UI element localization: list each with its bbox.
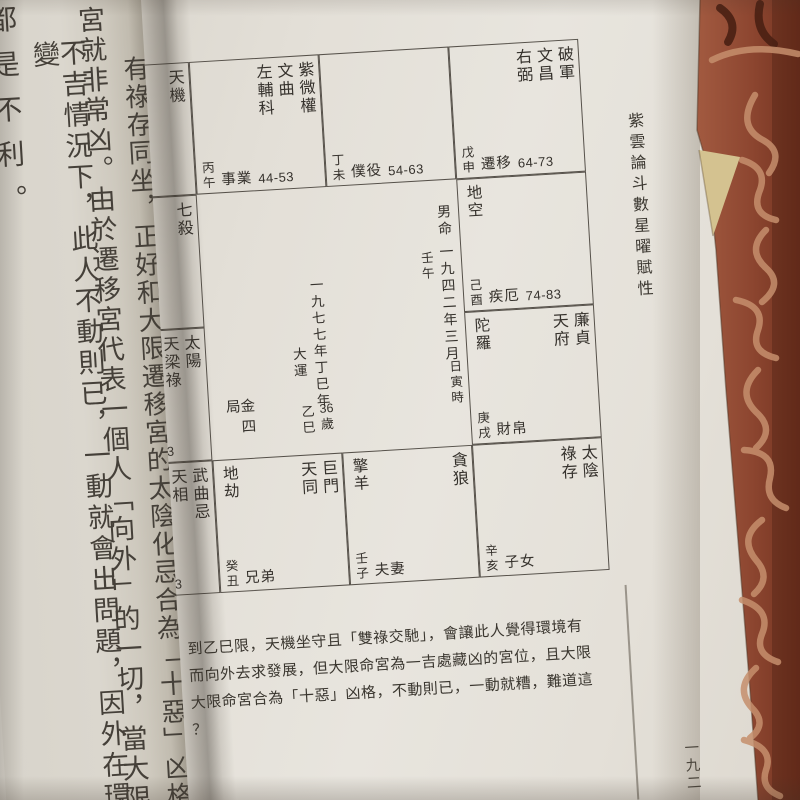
dayun-pillar: 乙巳 [300, 404, 315, 437]
palace-footer: 癸 丑 兄弟 [225, 557, 276, 589]
palace-branch: 未 [332, 168, 345, 183]
palace-stem: 丙 [202, 161, 215, 176]
star-name: 文曲 [274, 62, 293, 117]
stem-branch: 壬 子 [355, 551, 369, 580]
aux-star-name: 地空 [465, 184, 483, 220]
year-pillar: 壬午 [419, 251, 433, 283]
palace-branch: 丑 [226, 574, 239, 589]
palace-stars: 太陽 天梁祿 [160, 334, 200, 390]
palace-range: 74-83 [525, 286, 562, 304]
five-element-bureau: 金四局 [224, 398, 257, 460]
aux-star-name: 地劫 [221, 465, 239, 501]
stem-branch: 戊 申 [461, 145, 475, 174]
palace-stars: 紫微權 文曲 左輔科 [253, 61, 314, 118]
palace-stem: 丁 [331, 153, 344, 168]
stem-branch: 庚 戌 [477, 411, 491, 440]
palace-cell-you: 地空 己 酉 疾厄 74-83 [456, 172, 594, 312]
palace-branch: 午 [203, 175, 216, 190]
star-name: 廉貞 [570, 311, 588, 348]
stem-branch: 丙 午 [202, 161, 216, 190]
stem-branch: 癸 丑 [225, 559, 239, 588]
age-unit: 歲 [320, 416, 334, 432]
star-name: 左輔科 [253, 63, 272, 118]
star-name: 右弼 [513, 48, 531, 85]
palace-branch: 子 [356, 566, 369, 581]
star-name: 武曲忌 [189, 467, 208, 522]
star-name: 天府 [549, 312, 567, 349]
dayun-year: 一九七七年丁巳年 [308, 277, 329, 410]
palace-cell-shen: 破軍 文昌 右弼 戊 申 遷移 64-73 [448, 39, 586, 179]
palace-stars: 貪狼 [448, 451, 466, 488]
palace-range: 54-63 [388, 161, 425, 179]
palace-stars: 廉貞 天府 [549, 311, 588, 349]
page-edge-line [625, 585, 639, 800]
stem-branch: 辛 亥 [485, 544, 499, 573]
palace-stars: 七殺 [173, 201, 191, 238]
star-name: 貪狼 [448, 451, 466, 488]
aux-star-name: 陀羅 [472, 317, 490, 353]
palace-label: 夫妻 [374, 557, 406, 580]
aux-star-name: 擎羊 [351, 457, 369, 493]
star-name: 破軍 [554, 45, 572, 82]
star-name: 天機 [165, 68, 183, 105]
palace-stars: 太陰 祿存 [557, 444, 596, 482]
palace-cell-xu: 陀羅 廉貞 天府 庚 戌 財帛 [464, 304, 602, 444]
palace-label: 子女 [504, 549, 536, 572]
palace-stem: 辛 [485, 544, 498, 559]
dayun-age: 36 歲 [319, 401, 335, 432]
dayun-label: 大運 [291, 347, 306, 381]
palace-cell-wei: 丁 未 僕役 54-63 [319, 47, 457, 187]
star-name: 巨門 [319, 459, 337, 496]
palace-branch: 亥 [486, 558, 499, 573]
palace-label: 遷移 [480, 151, 512, 174]
star-name: 文昌 [534, 47, 552, 84]
palace-range: 64-73 [517, 154, 554, 172]
gender-label: 男命 [435, 204, 451, 239]
palace-footer: 戊 申 遷移 64-73 [461, 141, 554, 175]
palace-cell-wu: 紫微權 文曲 左輔科 丙 午 事業 44-53 [189, 54, 327, 194]
palace-branch: 戌 [478, 425, 491, 440]
birth-time: 日寅時 [447, 359, 462, 406]
star-name: 七殺 [173, 201, 191, 238]
birth-date: 一九四二年三月 [437, 244, 458, 364]
palace-stars: 破軍 文昌 右弼 [513, 45, 573, 84]
palace-cell-zi: 擎羊 貪狼 壬 子 夫妻 [342, 445, 480, 585]
left-page-column: 都是不利。 [0, 4, 26, 230]
palace-stem: 癸 [225, 559, 238, 574]
palace-label: 事業 [221, 166, 253, 189]
palace-cell-chou: 地劫 巨門 天同 癸 丑 兄弟 [212, 453, 350, 593]
palace-stem: 壬 [355, 551, 368, 566]
palace-cell-hai: 太陰 祿存 辛 亥 子女 [472, 437, 610, 577]
palace-label: 兄弟 [244, 565, 276, 588]
palace-stem: 庚 [477, 411, 490, 426]
palace-range: 44-53 [258, 169, 295, 187]
star-name: 太陽 [181, 334, 200, 389]
stem-branch: 己 酉 [469, 278, 483, 307]
palace-stars: 武曲忌 天相 [168, 467, 208, 523]
star-name: 天同 [298, 460, 316, 497]
commentary-paragraph: 到乙巳限，天機坐守且「雙祿交馳」，會讓此人覺得環境有 而向外去求發展，但大限命宮… [187, 613, 596, 745]
palace-footer: 辛 亥 子女 [485, 542, 536, 574]
palace-stem: 己 [469, 278, 482, 293]
palace-label: 僕役 [350, 159, 382, 182]
palace-footer: 丙 午 事業 44-53 [202, 156, 295, 190]
palace-branch: 酉 [470, 293, 483, 308]
age-number: 36 [319, 401, 334, 417]
palace-label: 財帛 [496, 417, 528, 440]
palace-footer: 己 酉 疾厄 74-83 [469, 274, 562, 308]
page-spread: 天機 紫微權 文曲 左輔科 丙 午 事業 44-53 [0, 0, 800, 800]
star-name: 祿存 [557, 445, 575, 482]
star-name: 紫微權 [295, 61, 314, 116]
page-number: 一九二 [682, 740, 700, 793]
palace-footer: 庚 戌 財帛 [477, 408, 534, 440]
palace-footer: 壬 子 夫妻 [355, 549, 406, 581]
palace-label: 疾厄 [488, 284, 520, 307]
stem-branch: 丁 未 [331, 153, 345, 182]
palace-stars: 天機 [165, 68, 183, 105]
palace-stem: 戊 [461, 145, 474, 160]
palace-branch: 申 [462, 160, 475, 175]
chart-center-panel: 男命 一九四二年三月 日寅時 壬午 一九七七年丁巳年 大運 乙巳 36 歲 金四… [197, 179, 472, 460]
palace-stars: 巨門 天同 [298, 459, 337, 497]
star-name: 太陰 [578, 444, 596, 481]
book-photo: 天機 紫微權 文曲 左輔科 丙 午 事業 44-53 [0, 0, 800, 800]
palace-footer: 丁 未 僕役 54-63 [331, 149, 424, 183]
